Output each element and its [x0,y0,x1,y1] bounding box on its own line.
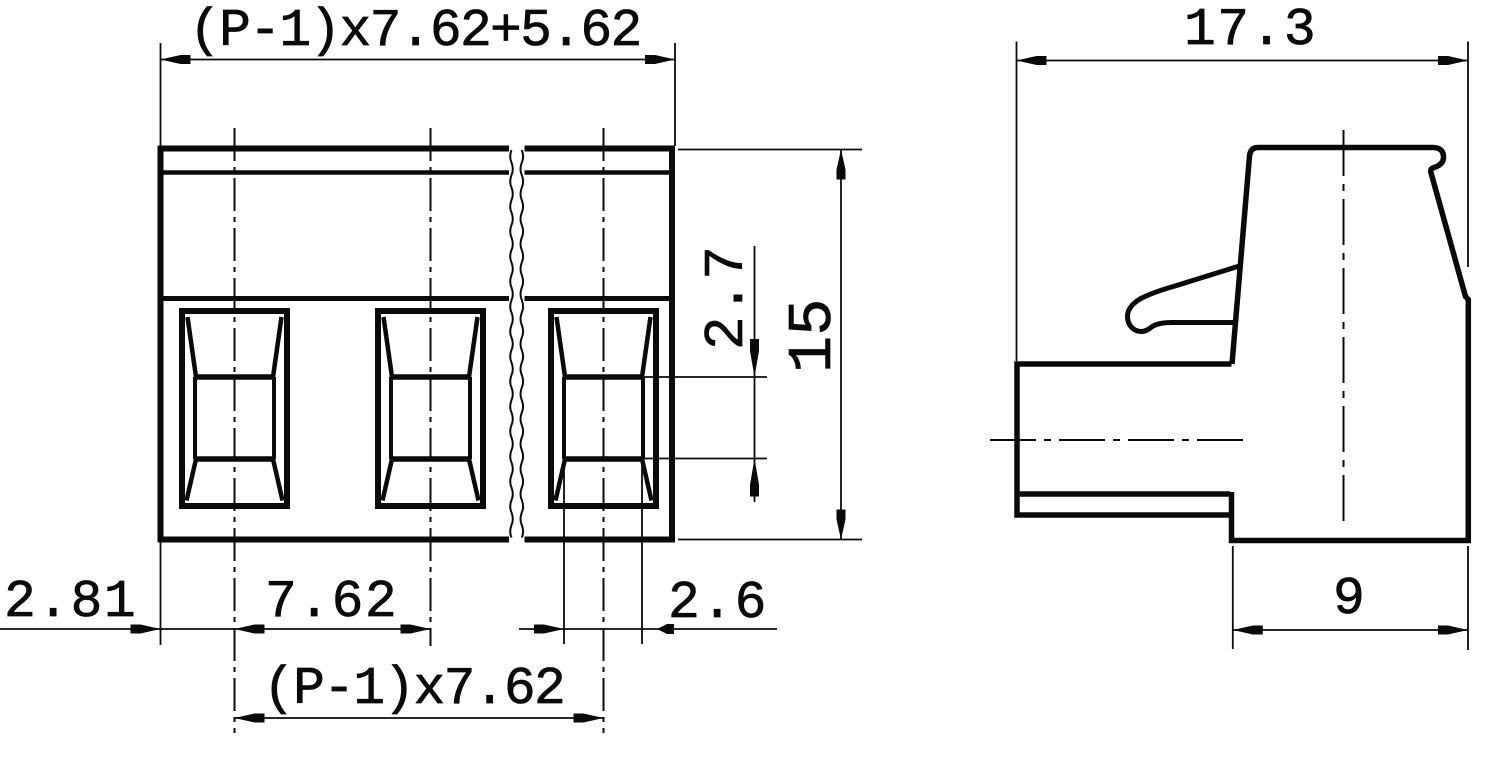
svg-text:7.62: 7.62 [265,572,398,632]
svg-text:(P-1)x7.62: (P-1)x7.62 [263,659,564,719]
svg-text:17.3: 17.3 [1184,0,1317,60]
svg-text:15: 15 [778,299,849,373]
svg-text:(P-1)x7.62+5.62: (P-1)x7.62+5.62 [189,1,641,61]
svg-text:2.7: 2.7 [695,245,759,350]
svg-text:2.6: 2.6 [668,573,768,633]
svg-text:9: 9 [1333,569,1366,629]
svg-text:2.81: 2.81 [4,572,137,632]
